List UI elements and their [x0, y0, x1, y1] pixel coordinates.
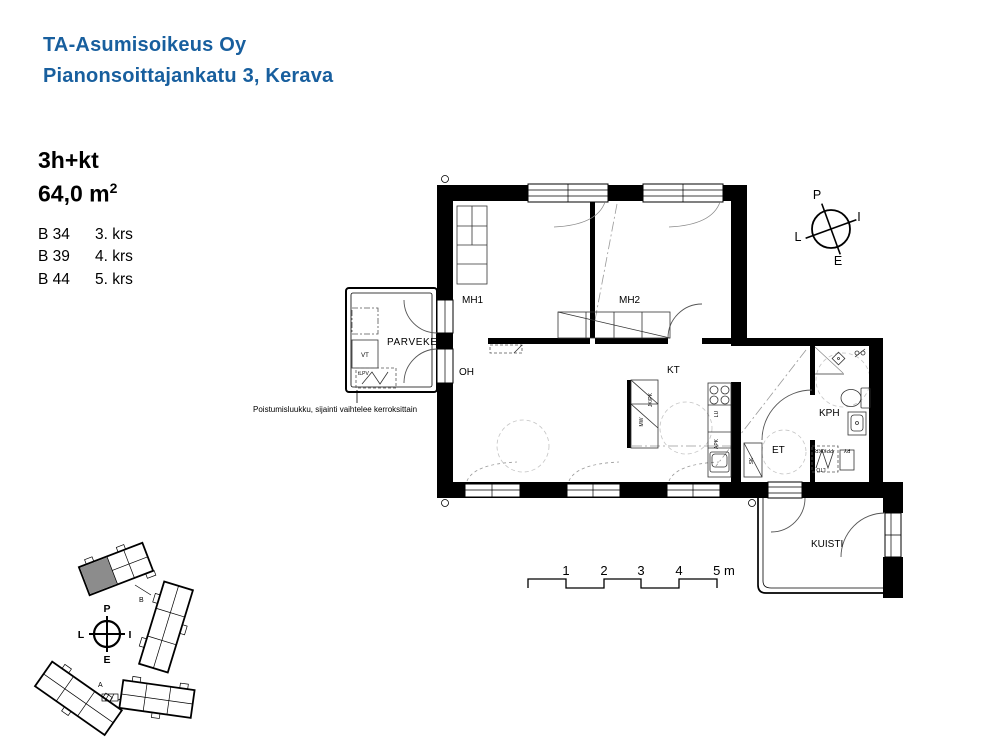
- label-cleaning-closet: SK: [749, 457, 755, 464]
- site-building-a1: [32, 658, 125, 740]
- label-stove: LU: [714, 410, 720, 417]
- wall-segment: [595, 338, 668, 344]
- label-dryer: PY: [843, 447, 850, 453]
- floor-drain: [832, 352, 845, 365]
- door-arc: [668, 304, 702, 338]
- wall-segment: [731, 338, 883, 346]
- balcony-door: [437, 349, 453, 383]
- escape-hatch-note: Poistumisluukku, sijainti vaihtelee kerr…: [253, 405, 417, 414]
- floorplan-page: TA-Asumisoikeus Oy Pianonsoittajankatu 3…: [0, 0, 1000, 750]
- sliding-door-mh1: [490, 345, 522, 353]
- label-micro: MW: [639, 417, 645, 426]
- wall-segment: [437, 201, 453, 300]
- shower-mixer: [855, 349, 865, 357]
- dashdot-line: [716, 350, 806, 466]
- wall-segment: [590, 201, 595, 338]
- scale-tick-4: 4: [675, 563, 682, 578]
- site-compass: P I E L: [78, 603, 132, 666]
- compass-north: P: [813, 188, 821, 202]
- porch-window: [885, 513, 901, 557]
- room-label-parveke: PARVEKE: [387, 337, 438, 348]
- scale-tick-2: 2: [600, 563, 607, 578]
- sink-basin: [712, 454, 727, 467]
- label-vt: VT: [361, 353, 369, 359]
- window: [567, 484, 620, 497]
- compass-rose: P I E L: [795, 188, 866, 268]
- wall-segment: [810, 346, 815, 395]
- compass-west: L: [795, 230, 802, 244]
- wall-segment: [869, 346, 883, 482]
- site-label-b: B: [139, 597, 144, 604]
- window-swing-arc: [669, 202, 720, 227]
- wall-segment: [883, 557, 903, 598]
- entry-door-threshold: [768, 482, 802, 498]
- window: [667, 484, 720, 497]
- washbasin: [848, 412, 866, 435]
- wardrobe-mh1: [457, 206, 487, 284]
- label-fridge: JK/PK: [648, 392, 654, 407]
- compass-cross: [796, 194, 865, 263]
- walls: [437, 185, 903, 598]
- wall-segment: [627, 380, 631, 448]
- site-building-a2: [119, 675, 196, 723]
- wall-segment: [883, 498, 903, 513]
- room-label-kt: KT: [667, 365, 680, 376]
- room-label-oh: OH: [459, 367, 474, 378]
- room-label-et: ET: [772, 445, 785, 456]
- floor-plan-svg: MH1 MH2 PARVEKE OH KT KPH ET KUISTI VT t…: [0, 0, 1000, 750]
- section-lines: [592, 204, 806, 466]
- compass-east: I: [857, 210, 860, 224]
- window-swing-arc: [554, 202, 605, 227]
- downpipe: [442, 500, 449, 507]
- wall-segment: [437, 333, 453, 349]
- wall-segment: [437, 383, 453, 482]
- window-swing-arc: [569, 462, 619, 481]
- hob-burner: [710, 396, 718, 404]
- site-compass-north: P: [103, 603, 110, 615]
- door-arc: [841, 513, 885, 557]
- hob-burner: [710, 386, 718, 394]
- room-label-mh1: MH1: [462, 295, 484, 306]
- window: [643, 184, 723, 202]
- balcony-door: [437, 300, 453, 333]
- room-label-mh2: MH2: [619, 295, 641, 306]
- compass-south: E: [834, 254, 842, 268]
- label-laundry: PPK/KR: [814, 447, 833, 453]
- scale-tick-5: 5 m: [713, 563, 735, 578]
- kitchen-island: [631, 380, 658, 448]
- site-compass-east: I: [129, 629, 132, 641]
- kitchen-counter: [708, 383, 731, 477]
- room-label-kph: KPH: [819, 408, 840, 419]
- window-swing-arc: [669, 462, 719, 481]
- hob-burner: [721, 396, 729, 404]
- window: [465, 484, 520, 497]
- label-heat-recovery: LTO: [816, 466, 825, 472]
- room-labels: MH1 MH2 PARVEKE OH KT KPH ET KUISTI: [387, 295, 843, 550]
- room-label-kuisti: KUISTI: [811, 539, 843, 550]
- site-plan: P I E L B A: [32, 538, 198, 739]
- window: [528, 184, 608, 202]
- door-arc: [771, 498, 805, 532]
- scale-bar-line: [528, 579, 717, 588]
- closets-mh2: [558, 312, 670, 338]
- site-compass-south: E: [103, 654, 110, 666]
- turning-circle-kph: [816, 353, 870, 407]
- wall-segment: [731, 185, 747, 338]
- label-hatch: tLPV: [358, 371, 370, 377]
- site-compass-cross: [89, 616, 125, 652]
- site-label-a: A: [98, 682, 103, 689]
- scale-bar: 1 2 3 4 5 m: [528, 563, 735, 588]
- downpipe: [749, 500, 756, 507]
- site-compass-west: L: [78, 629, 85, 641]
- shower-diagonal: [815, 347, 843, 373]
- scale-tick-3: 3: [637, 563, 644, 578]
- site-building-b: [134, 580, 197, 674]
- label-dishwasher: APK: [714, 438, 720, 449]
- dashdot-line: [592, 204, 617, 336]
- turning-circle-oh: [497, 420, 549, 472]
- wall-segment: [731, 382, 741, 482]
- wall-segment: [702, 338, 731, 344]
- hob-burner: [721, 386, 729, 394]
- downpipe: [442, 176, 449, 183]
- toilet: [841, 388, 870, 408]
- window-swing-arc: [467, 462, 517, 481]
- scale-tick-1: 1: [562, 563, 569, 578]
- wall-segment: [488, 338, 590, 344]
